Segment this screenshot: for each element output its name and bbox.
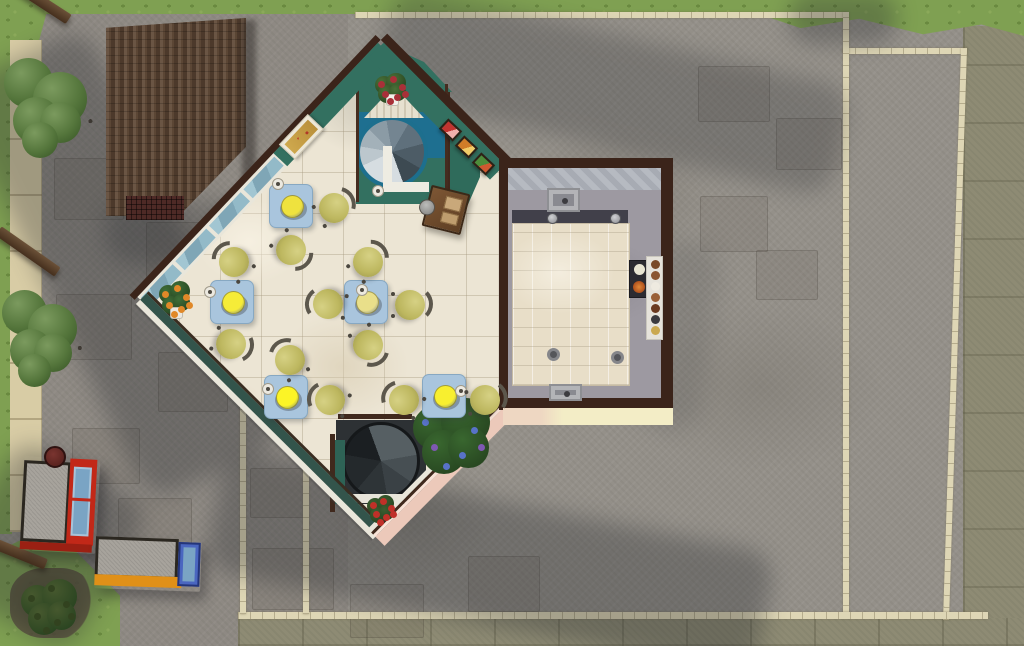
chair-foot: [340, 414, 345, 419]
flower-bloom: [383, 514, 390, 521]
cup[interactable]: [372, 185, 384, 197]
sapling[interactable]: [16, 578, 80, 638]
chair-foot: [464, 390, 469, 395]
chair-foot: [347, 393, 352, 398]
chair-foot: [251, 263, 257, 269]
flower-bloom: [402, 91, 409, 98]
plate[interactable]: [276, 386, 299, 409]
flower-bloom: [186, 302, 193, 309]
chair-foot: [311, 204, 316, 209]
stove-burner: [633, 281, 645, 293]
chair-foot: [468, 411, 473, 416]
dining-chair[interactable]: [390, 285, 430, 325]
chair-foot: [421, 396, 426, 401]
dining-chair[interactable]: [341, 318, 396, 373]
sink-drain: [564, 391, 570, 397]
red-flower-plant[interactable]: [364, 494, 396, 524]
food-item[interactable]: [651, 326, 660, 335]
floor-drain: [611, 351, 624, 364]
flower-bloom: [28, 595, 35, 602]
chair-seat: [395, 290, 425, 320]
flower-bloom: [390, 511, 397, 518]
flower-bloom: [478, 444, 485, 451]
game-viewport: [0, 0, 1024, 646]
furniture-layer: [0, 0, 1024, 646]
faucet[interactable]: [547, 213, 558, 224]
food-item[interactable]: [651, 282, 660, 291]
dining-chair[interactable]: [263, 222, 320, 279]
pedestal-plant[interactable]: [372, 72, 408, 104]
chair-foot: [366, 322, 371, 327]
flower-bloom: [178, 306, 185, 313]
corner-flower-pot[interactable]: [156, 280, 192, 318]
stove-plate: [634, 264, 645, 275]
flower-bloom: [459, 452, 466, 459]
chair-foot: [286, 377, 291, 382]
chair-foot: [347, 333, 352, 338]
wall-painting-small[interactable]: [439, 118, 462, 141]
flower-bloom: [43, 627, 50, 634]
flower-bloom: [34, 613, 41, 620]
flower-bloom: [174, 285, 181, 292]
chair-foot: [391, 292, 395, 296]
chair-foot: [345, 263, 351, 269]
food-item[interactable]: [651, 271, 660, 280]
floor-drain: [547, 348, 560, 361]
cup[interactable]: [272, 178, 284, 190]
wall-painting-small[interactable]: [455, 135, 478, 158]
wall-painting-small[interactable]: [472, 152, 495, 175]
flower-bloom: [380, 498, 387, 505]
dining-chair[interactable]: [205, 318, 256, 369]
chair-foot: [235, 279, 241, 285]
chair-foot: [344, 294, 349, 299]
chair-foot: [216, 325, 221, 330]
chair-foot: [305, 366, 310, 371]
plate[interactable]: [281, 195, 304, 218]
cup[interactable]: [262, 383, 274, 395]
food-item[interactable]: [651, 304, 660, 313]
sink-drain: [562, 198, 568, 204]
flower-bloom: [377, 519, 384, 526]
dining-chair[interactable]: [462, 377, 508, 423]
kitchen-sink[interactable]: [549, 384, 582, 401]
chair-foot: [322, 223, 327, 228]
flower-bloom: [390, 76, 397, 83]
faucet[interactable]: [610, 213, 621, 224]
chair-foot: [361, 279, 367, 285]
plate[interactable]: [222, 291, 245, 314]
chair-foot: [391, 314, 395, 318]
flower-bloom: [382, 91, 389, 98]
chair-foot: [410, 415, 415, 420]
food-item[interactable]: [651, 293, 660, 302]
chair-foot: [268, 243, 274, 249]
chair-foot: [284, 227, 290, 233]
flower-bloom: [431, 444, 438, 451]
dining-chair[interactable]: [305, 281, 351, 327]
prep-counter[interactable]: [646, 256, 663, 340]
plate[interactable]: [434, 385, 457, 408]
chair-foot: [341, 315, 346, 320]
dining-chair[interactable]: [307, 181, 362, 236]
kitchen-sink[interactable]: [547, 188, 580, 212]
flower-bloom: [422, 419, 429, 426]
chair-foot: [209, 346, 214, 351]
flower-bloom: [394, 94, 401, 101]
cup[interactable]: [204, 286, 216, 298]
dining-chair[interactable]: [304, 374, 355, 425]
food-item[interactable]: [651, 315, 660, 324]
food-item[interactable]: [651, 260, 660, 269]
